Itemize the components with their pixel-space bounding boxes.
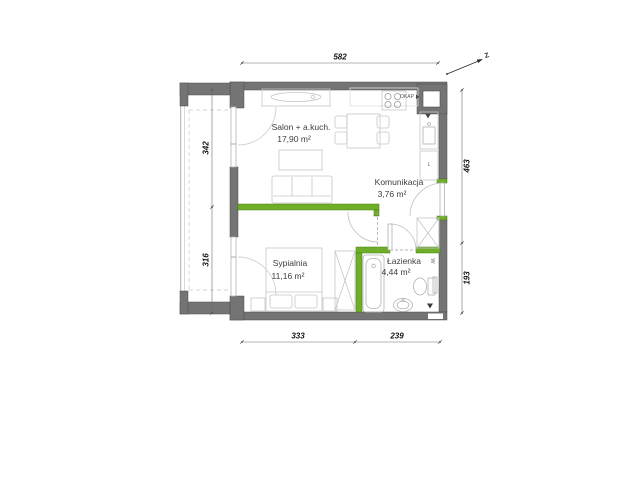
tv-icon	[271, 93, 321, 102]
washer-label: W	[429, 258, 435, 263]
wardrobe-hallway	[417, 218, 439, 248]
opening-dashes	[378, 212, 417, 250]
chair	[377, 132, 389, 144]
sypialnia-label: Sypialnia	[273, 258, 308, 268]
dining-table	[347, 114, 380, 148]
sofa	[272, 176, 332, 203]
fridge-label: L	[428, 162, 431, 168]
sink-arrow-icon	[425, 114, 431, 119]
sypialnia-area: 11,16 m²	[272, 271, 305, 281]
wall-niche	[428, 314, 443, 320]
kitchen-sink	[420, 112, 438, 149]
lazienka-label: Łazienka	[387, 256, 421, 266]
dim-right-upper: 463	[463, 159, 472, 172]
vent-arrow-icon	[427, 304, 433, 309]
bathtub	[363, 255, 384, 312]
dim-top: 582	[333, 53, 346, 62]
chair	[335, 132, 347, 144]
salon-area: 17,90 m²	[277, 134, 311, 144]
compass-arrow	[446, 59, 483, 75]
coffee-table	[279, 150, 322, 170]
dining-set	[335, 114, 389, 148]
tv-cabinet	[262, 89, 330, 106]
bathroom-door-leaf	[388, 224, 392, 250]
dim-bottom-left: 333	[291, 332, 304, 341]
entrance-door-arc	[410, 183, 443, 216]
dim-left-lower: 316	[202, 253, 211, 266]
compass-arrowhead-icon	[477, 59, 483, 63]
salon-label: Salon + a.kuch.	[272, 122, 331, 132]
komunikacja-area: 3,76 m²	[378, 189, 407, 199]
dim-bottom-right: 239	[390, 332, 403, 341]
washbasin	[394, 298, 413, 311]
floor-plan-drawing	[0, 0, 640, 480]
entrance-door-leaf	[440, 183, 445, 216]
toilet	[414, 278, 436, 295]
bedroom-door-arc	[348, 212, 378, 242]
hood-label: OKAP	[400, 94, 414, 100]
pillow	[270, 295, 292, 308]
komunikacja-label: Komunikacja	[375, 177, 424, 187]
wardrobe-bedroom	[335, 251, 355, 310]
chair	[335, 116, 347, 128]
shaft	[423, 91, 440, 107]
bathroom-door-arc	[390, 224, 416, 250]
nightstand	[251, 298, 265, 311]
chair	[377, 116, 389, 128]
lazienka-area: 4,44 m²	[382, 267, 411, 277]
dim-right-lower: 193	[463, 271, 472, 284]
outer-walls	[180, 82, 447, 320]
pillow	[295, 295, 317, 308]
floor-plan-canvas: Salon + a.kuch. 17,90 m² Komunikacja 3,7…	[0, 0, 640, 480]
dim-left-upper: 342	[202, 141, 211, 154]
balcony-door-arcs	[238, 107, 276, 295]
